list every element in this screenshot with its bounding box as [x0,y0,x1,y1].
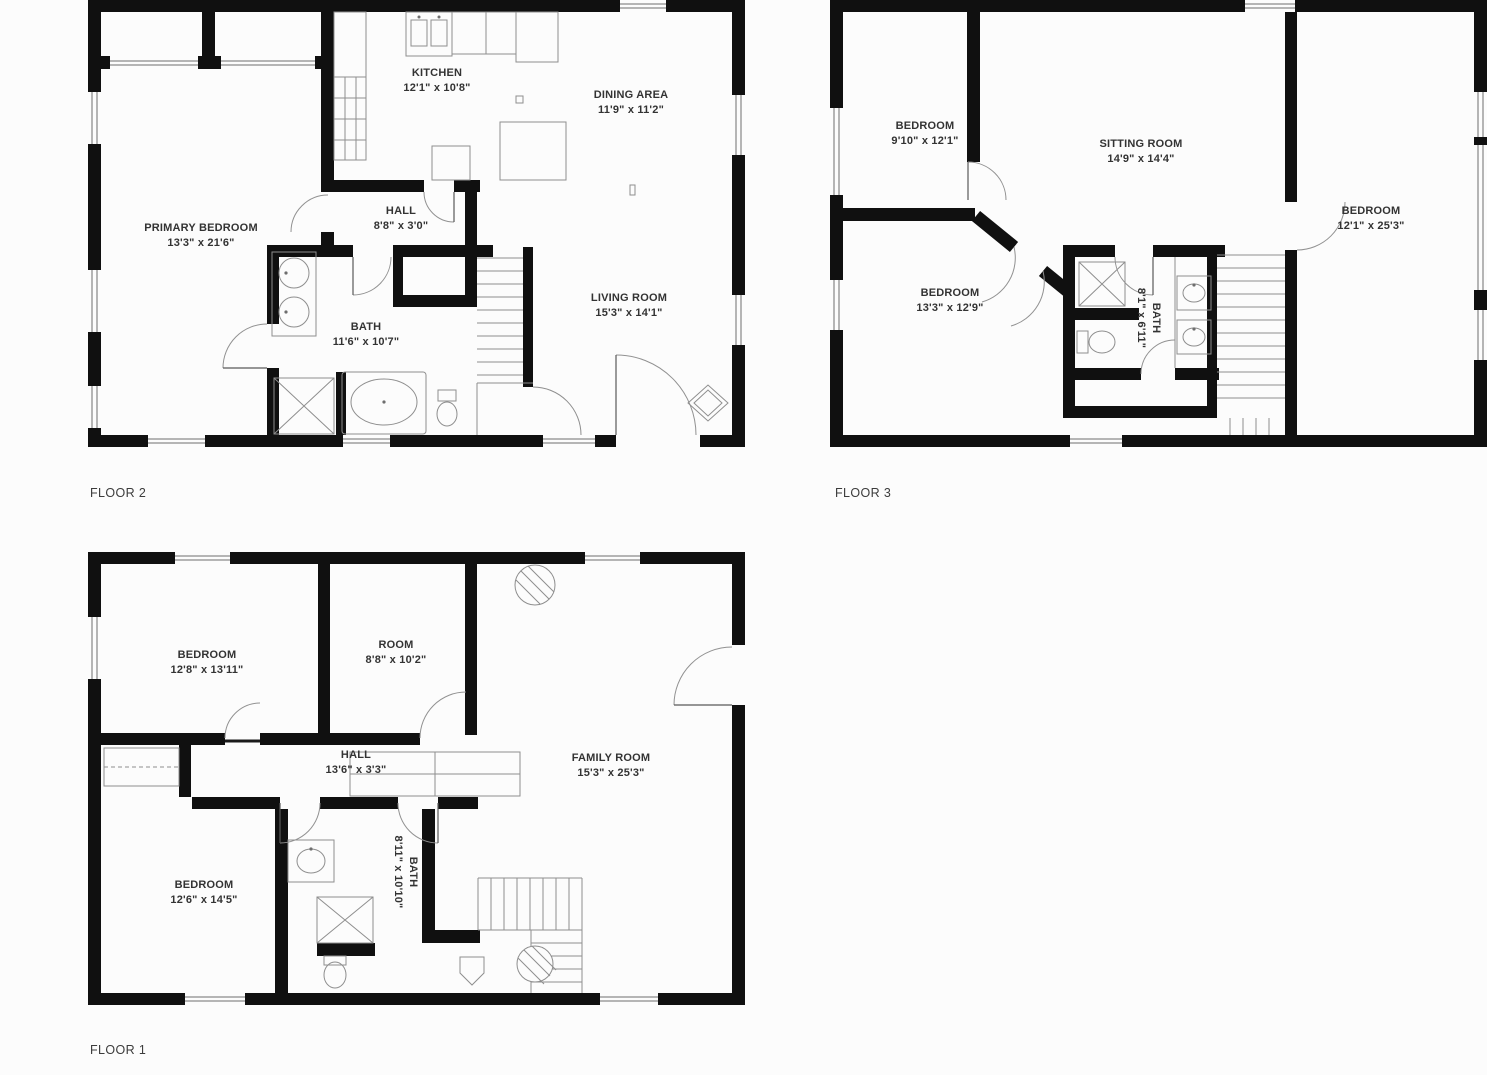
room-label-bath-f3: BATH 8'1" x 6'11" [1133,288,1163,348]
floor-2-tag: FLOOR 2 [90,486,146,500]
room-label-primary-bedroom: PRIMARY BEDROOM 13'3" x 21'6" [144,221,258,251]
room-label-bedroom-f1-top: BEDROOM 12'8" x 13'11" [171,648,244,678]
fan-symbol [517,946,553,982]
room-label-sitting-room: SITTING ROOM 14'9" x 14'4" [1099,137,1182,167]
floor-3-plan: BEDROOM 9'10" x 12'1" SITTING ROOM 14'9"… [830,0,1487,447]
floor-1-closets [104,748,520,796]
floor-3-tag: FLOOR 3 [835,486,891,500]
room-label-dining-area: DINING AREA 11'9" x 11'2" [594,88,669,118]
room-label-hall-f2: HALL 8'8" x 3'0" [374,204,429,234]
room-label-family-room: FAMILY ROOM 15'3" x 25'3" [572,751,651,781]
room-name: KITCHEN [403,66,470,81]
room-label-bedroom-f3-lower: BEDROOM 13'3" x 12'9" [916,286,983,316]
furnace-symbol [460,957,484,985]
floor-1-bath-fixtures [288,840,373,988]
room-label-bedroom-f3-right: BEDROOM 12'1" x 25'3" [1337,204,1404,234]
room-label-bath-f1: BATH 8'11" x 10'10" [390,836,420,909]
floor-2-kitchen-fixtures [334,12,635,195]
room-label-hall-f1: HALL 13'6" x 3'3" [326,748,387,778]
floorplan-sheet: KITCHEN 12'1" x 10'8" DINING AREA 11'9" … [0,0,1487,1075]
floor-1-plan: BEDROOM 12'8" x 13'11" ROOM 8'8" x 10'2"… [88,552,745,1005]
room-label-room: ROOM 8'8" x 10'2" [366,638,427,668]
floor-1-tag: FLOOR 1 [90,1043,146,1057]
room-label-bath-f2: BATH 11'6" x 10'7" [333,320,400,350]
floor-3-stairs [1217,255,1285,435]
floor-2-plan: KITCHEN 12'1" x 10'8" DINING AREA 11'9" … [88,0,745,447]
room-dims: 12'1" x 10'8" [403,81,470,96]
room-label-living-room: LIVING ROOM 15'3" x 14'1" [591,291,667,321]
room-label-bedroom-f1-bottom: BEDROOM 12'6" x 14'5" [170,878,237,908]
room-label-bedroom-f3-top: BEDROOM 9'10" x 12'1" [891,119,958,149]
room-label-kitchen: KITCHEN 12'1" x 10'8" [403,66,470,96]
